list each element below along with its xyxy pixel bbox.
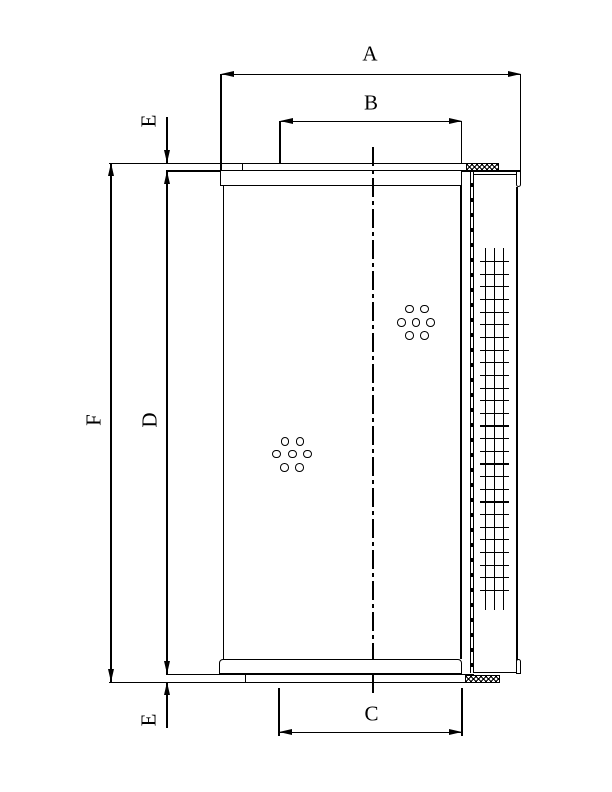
perforation-hole	[288, 450, 297, 459]
perforation-hole	[412, 318, 421, 327]
bottom-end-cap	[219, 659, 461, 674]
dim-f-line	[110, 163, 111, 682]
perforation-hole	[420, 305, 429, 314]
mesh-horizontal-wire	[480, 261, 509, 262]
filter-element-dimension-drawing: A B C F D E E	[0, 0, 612, 792]
mesh-vertical-wire	[485, 248, 486, 610]
mesh-horizontal-wire	[480, 476, 509, 477]
dim-f-arrow-top	[108, 163, 114, 176]
mesh-horizontal-wire	[480, 312, 509, 313]
mesh-horizontal-wire	[480, 375, 509, 376]
mesh-horizontal-wire	[480, 324, 509, 325]
mesh-horizontal-wire	[480, 514, 509, 515]
mesh-horizontal-wire	[480, 577, 509, 578]
dim-c-ext-left	[278, 688, 279, 736]
top-gasket	[466, 163, 499, 172]
mesh-horizontal-wire	[480, 501, 509, 502]
perforation-hole	[420, 331, 429, 340]
dim-a-arrow-left	[221, 71, 234, 77]
perforation-hole	[397, 318, 406, 327]
dim-f-arrow-bottom	[108, 669, 114, 682]
mesh-horizontal-wire	[480, 413, 509, 414]
dim-a-line	[221, 74, 521, 75]
mesh-vertical-wire	[503, 248, 504, 610]
dim-f-label: F	[84, 414, 105, 426]
dim-d-arrow-top	[164, 171, 170, 184]
right-chamber-top-line	[474, 174, 517, 175]
mesh-horizontal-wire	[480, 463, 509, 464]
dim-c-arrow-left	[279, 729, 292, 735]
top-right-clip	[516, 171, 521, 188]
dim-c-ext-right	[461, 688, 462, 736]
bottom-flange-tick	[245, 674, 246, 682]
perforation-hole	[296, 437, 305, 446]
right-chamber-bottom-line	[474, 672, 516, 673]
mesh-horizontal-wire	[480, 337, 509, 338]
mesh-horizontal-wire	[480, 539, 509, 540]
perforation-hole	[295, 463, 304, 472]
perforation-hole	[281, 437, 290, 446]
perforation-hole	[426, 318, 435, 327]
dim-d-line	[166, 171, 167, 675]
perforation-hole	[272, 450, 281, 459]
body-right-edge	[460, 186, 461, 660]
dim-e-top-arrow	[164, 150, 170, 163]
dim-d-label: D	[140, 412, 161, 427]
dim-e-bottom-label: E	[139, 714, 160, 727]
top-end-cap	[220, 170, 462, 185]
bottom-flange-inner-line	[166, 674, 474, 675]
centerline	[372, 147, 373, 695]
mesh-horizontal-wire	[480, 451, 509, 452]
dim-c-arrow-right	[449, 729, 462, 735]
dim-b-arrow-right	[449, 118, 462, 124]
dim-a-ext-left	[220, 74, 221, 173]
outer-shell-right-edge	[516, 187, 519, 674]
dim-a-arrow-right	[508, 71, 521, 77]
mesh-horizontal-wire	[480, 362, 509, 363]
mesh-horizontal-wire	[480, 527, 509, 528]
mesh-horizontal-wire	[480, 350, 509, 351]
pleat-seam-channel	[470, 172, 475, 673]
mesh-horizontal-wire	[480, 590, 509, 591]
top-flange-outer-line	[109, 163, 499, 164]
bottom-gasket	[465, 675, 500, 684]
perforation-hole	[405, 331, 414, 340]
perforation-hole	[303, 450, 312, 459]
dim-b-line	[280, 121, 462, 122]
mesh-horizontal-wire	[480, 565, 509, 566]
body-left-edge	[223, 186, 224, 660]
mesh-vertical-wire	[494, 248, 495, 610]
mesh-horizontal-wire	[480, 438, 509, 439]
mesh-horizontal-wire	[480, 425, 509, 426]
mesh-horizontal-wire	[480, 400, 509, 401]
bottom-right-clip	[516, 659, 521, 674]
dim-c-line	[279, 732, 462, 733]
dim-b-ext-right	[461, 121, 462, 164]
mesh-horizontal-wire	[480, 286, 509, 287]
mesh-horizontal-wire	[480, 388, 509, 389]
bottom-flange-outer-line	[109, 682, 465, 683]
mesh-horizontal-wire	[480, 299, 509, 300]
dim-e-top-label: E	[139, 115, 160, 128]
dim-c-label: C	[364, 704, 378, 725]
perforation-hole	[405, 305, 414, 314]
mesh-horizontal-wire	[480, 552, 509, 553]
dim-a-label: A	[362, 44, 377, 65]
mesh-horizontal-wire	[480, 274, 509, 275]
dim-b-ext-left	[279, 121, 280, 164]
dim-e-bottom-arrow	[164, 682, 170, 695]
perforation-hole	[280, 463, 289, 472]
mesh-horizontal-wire	[480, 489, 509, 490]
dim-d-arrow-bottom	[164, 661, 170, 674]
dim-a-ext-right	[520, 74, 521, 172]
dim-b-label: B	[364, 93, 378, 114]
dim-b-arrow-left	[280, 118, 293, 124]
